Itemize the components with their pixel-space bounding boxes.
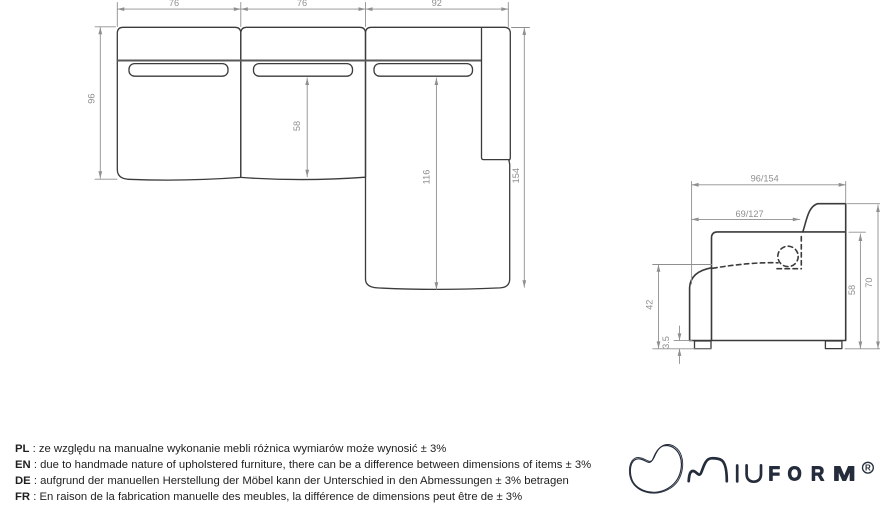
svg-text:3.5: 3.5: [661, 336, 671, 349]
svg-text:70: 70: [864, 277, 874, 287]
svg-text:69/127: 69/127: [736, 209, 764, 219]
svg-text:58: 58: [292, 121, 302, 131]
svg-text:92: 92: [432, 0, 442, 8]
svg-text:M: M: [833, 463, 856, 486]
svg-text:R: R: [865, 464, 871, 473]
svg-text:58: 58: [847, 285, 857, 295]
svg-text:76: 76: [169, 0, 179, 8]
svg-text:96: 96: [86, 93, 96, 103]
svg-text:O: O: [788, 463, 802, 486]
svg-text:116: 116: [422, 170, 432, 185]
svg-text:76: 76: [297, 0, 307, 8]
svg-text:42: 42: [645, 300, 655, 310]
svg-text:R: R: [811, 463, 824, 486]
svg-text:96/154: 96/154: [751, 174, 779, 184]
svg-text:F: F: [768, 463, 780, 486]
svg-text:154: 154: [511, 168, 521, 183]
